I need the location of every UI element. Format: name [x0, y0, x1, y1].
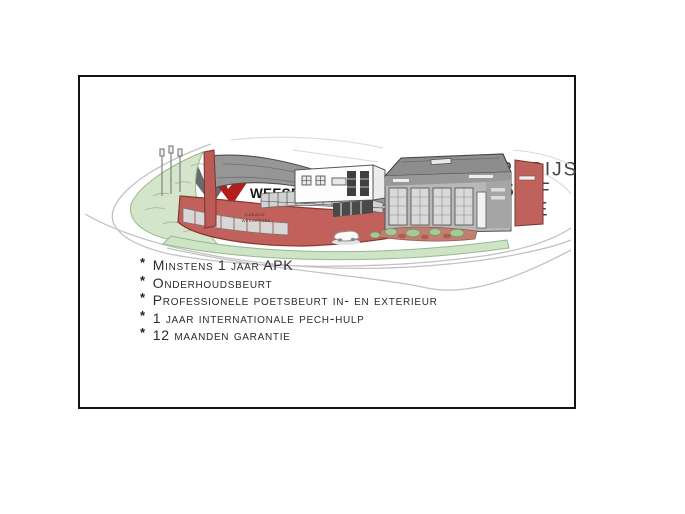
bullet-asterisk: * — [140, 254, 146, 272]
benefit-item: *Minstens 1 jaar APK — [140, 257, 540, 275]
flyer-canvas: GARAGE WEESEPOEL BV RIJKLAARPRIJS INCLUS… — [0, 0, 685, 514]
benefit-text: Professionele poetsbeurt in- en exterieu… — [153, 292, 438, 308]
benefit-text: 12 maanden garantie — [153, 327, 291, 343]
benefit-item: *Onderhoudsbeurt — [140, 275, 540, 293]
benefit-text: Onderhoudsbeurt — [153, 275, 273, 291]
benefit-item: *Professionele poetsbeurt in- en exterie… — [140, 292, 540, 310]
benefits-list: *Minstens 1 jaar APK *Onderhoudsbeurt *P… — [140, 257, 540, 345]
benefit-text: 1 jaar internationale pech-hulp — [153, 310, 365, 326]
bullet-asterisk: * — [140, 272, 146, 290]
car-sketch — [332, 231, 360, 245]
benefit-item: *12 maanden garantie — [140, 327, 540, 345]
workshop-building — [385, 154, 543, 233]
bullet-asterisk: * — [140, 324, 146, 342]
bullet-asterisk: * — [140, 289, 146, 307]
benefit-text: Minstens 1 jaar APK — [153, 257, 294, 273]
bullet-asterisk: * — [140, 307, 146, 325]
building-name-label-2: WEESEPOEL — [242, 218, 271, 223]
building-name-label-1: GARAGE — [245, 212, 266, 217]
benefit-item: *1 jaar internationale pech-hulp — [140, 310, 540, 328]
